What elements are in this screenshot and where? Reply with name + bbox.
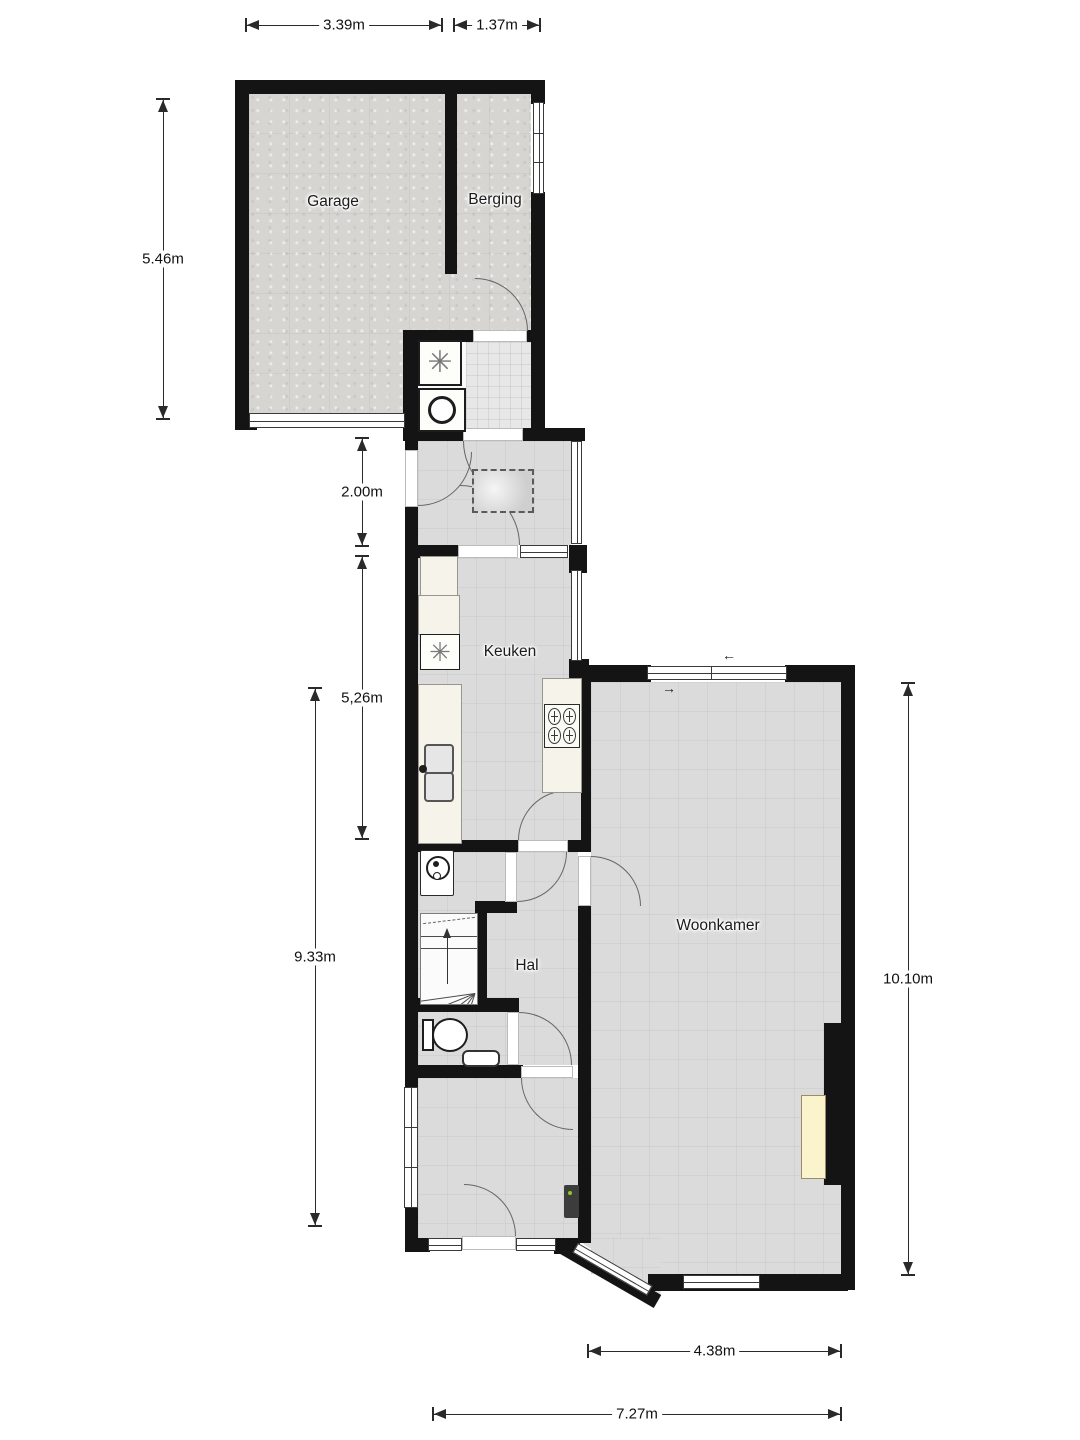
dimension-label: 5.46m: [138, 251, 188, 268]
dishwasher: ✳: [420, 634, 460, 670]
stair-tread: [421, 948, 477, 949]
window-mullion: [534, 162, 543, 163]
staircase: [420, 913, 478, 1005]
wall-segment: [531, 192, 545, 432]
livingroom-sliding-door: [647, 666, 787, 680]
berging-utility-door: [473, 330, 527, 342]
vestibule-living-wall: [578, 1068, 591, 1243]
scullery-kitchen-door: [458, 545, 518, 558]
toilet-door: [507, 1012, 519, 1065]
dimension-scullery-depth: 2.00m: [351, 437, 373, 547]
sliding-door-arrow-left: ←: [722, 648, 736, 662]
dimension-kitchen-depth: 5,26m: [351, 555, 373, 840]
front-door: [462, 1236, 516, 1250]
dimension-garage-depth: 5.46m: [152, 98, 174, 420]
toilet-bowl: [432, 1018, 468, 1052]
wall-segment: [235, 80, 249, 430]
wall-segment: [235, 80, 545, 94]
window-mullion: [534, 133, 543, 134]
dimension-label: 2.00m: [337, 484, 387, 501]
hall-vestibule-door: [521, 1066, 573, 1078]
wall-segment: [405, 558, 418, 850]
skylight: [472, 469, 534, 513]
dryer: [418, 388, 466, 432]
burner-icon: [548, 727, 561, 744]
dimension-total-width: 7.27m: [432, 1403, 842, 1425]
dryer-icon: [428, 396, 456, 424]
fireplace: [801, 1095, 826, 1179]
dimension-label: 4.38m: [690, 1343, 740, 1360]
meter-dot: [433, 872, 441, 880]
thermostat-unit: [564, 1185, 579, 1218]
burner-icon: [563, 727, 576, 744]
dimension-garage-width: 3.39m: [245, 14, 443, 36]
kitchen-right-window: [571, 570, 582, 661]
burner-icon: [548, 708, 561, 725]
sliding-door-arrow-right: →: [662, 681, 676, 695]
kitchen-faucet: [419, 765, 427, 773]
kitchen-sink-basin: [424, 772, 454, 802]
garage-label: Garage: [307, 193, 359, 211]
floor-plan: ← → ✳ ✳: [0, 0, 1080, 1440]
berging-label: Berging: [468, 191, 521, 209]
dimension-label: 1.37m: [472, 17, 522, 34]
burner-icon: [563, 708, 576, 725]
dimension-label: 7.27m: [612, 1406, 662, 1423]
wall-segment: [405, 850, 418, 1087]
kitchen-sink-basin: [424, 744, 454, 774]
berging-window: [533, 102, 544, 194]
dimension-label: 5,26m: [337, 689, 387, 706]
sliding-door-divider: [711, 667, 712, 679]
garage-berging-partition-wall: [445, 92, 457, 274]
kitchen-counter: [418, 595, 460, 635]
livingroom-bottom-window: [683, 1275, 760, 1289]
stove: [544, 704, 580, 748]
vestibule-bottom-window-right: [516, 1238, 556, 1251]
washing-machine: ✳: [418, 340, 462, 386]
wall-segment: [581, 665, 651, 682]
meter-cupboard-door: [505, 852, 517, 902]
scullery-back-door: [405, 450, 418, 507]
dimension-label: 3.39m: [319, 17, 369, 34]
hall-living-wall: [578, 906, 591, 1068]
wall-segment: [405, 1238, 430, 1252]
dimension-living-depth: 10.10m: [897, 682, 919, 1276]
dimension-label: 10.10m: [879, 971, 937, 988]
kitchen-hall-door: [518, 840, 568, 852]
wall-segment: [566, 840, 591, 852]
kitchen-cabinet: [420, 556, 458, 596]
wall-segment: [569, 545, 587, 573]
garage-door: [249, 413, 405, 428]
utility-tiled-floor: [466, 342, 531, 428]
chimney-breast: [824, 1023, 855, 1185]
woonkamer-label: Woonkamer: [676, 917, 759, 935]
scullery-right-window: [571, 441, 582, 544]
utility-scullery-door: [463, 428, 523, 441]
scullery-kitchen-window: [520, 545, 568, 558]
dimension-hall-depth: 9.33m: [304, 687, 326, 1227]
meter-dot: [433, 861, 439, 867]
hal-label: Hal: [515, 957, 538, 975]
stair-direction-arrow: [447, 930, 448, 984]
kitchen-living-wall: [581, 681, 591, 845]
keuken-label: Keuken: [484, 643, 537, 661]
window-mullion: [405, 1127, 417, 1128]
livingroom-floor: [591, 682, 841, 1274]
wall-segment: [527, 330, 545, 342]
wall-segment: [523, 428, 585, 441]
stair-headroom-line: [423, 917, 475, 924]
dimension-living-width: 4.38m: [587, 1340, 842, 1362]
dishwasher-icon: ✳: [429, 639, 451, 665]
window-mullion: [405, 1167, 417, 1168]
dimension-label: 9.33m: [290, 949, 340, 966]
dimension-berging-width: 1.37m: [453, 14, 541, 36]
hall-livingroom-door: [578, 856, 591, 906]
wall-segment: [531, 80, 545, 104]
vestibule-bottom-window-left: [428, 1238, 462, 1251]
vestibule-left-window: [404, 1087, 418, 1208]
washing-machine-icon: ✳: [427, 348, 452, 378]
wall-segment: [841, 665, 855, 1290]
toilet-washbasin: [462, 1050, 500, 1067]
